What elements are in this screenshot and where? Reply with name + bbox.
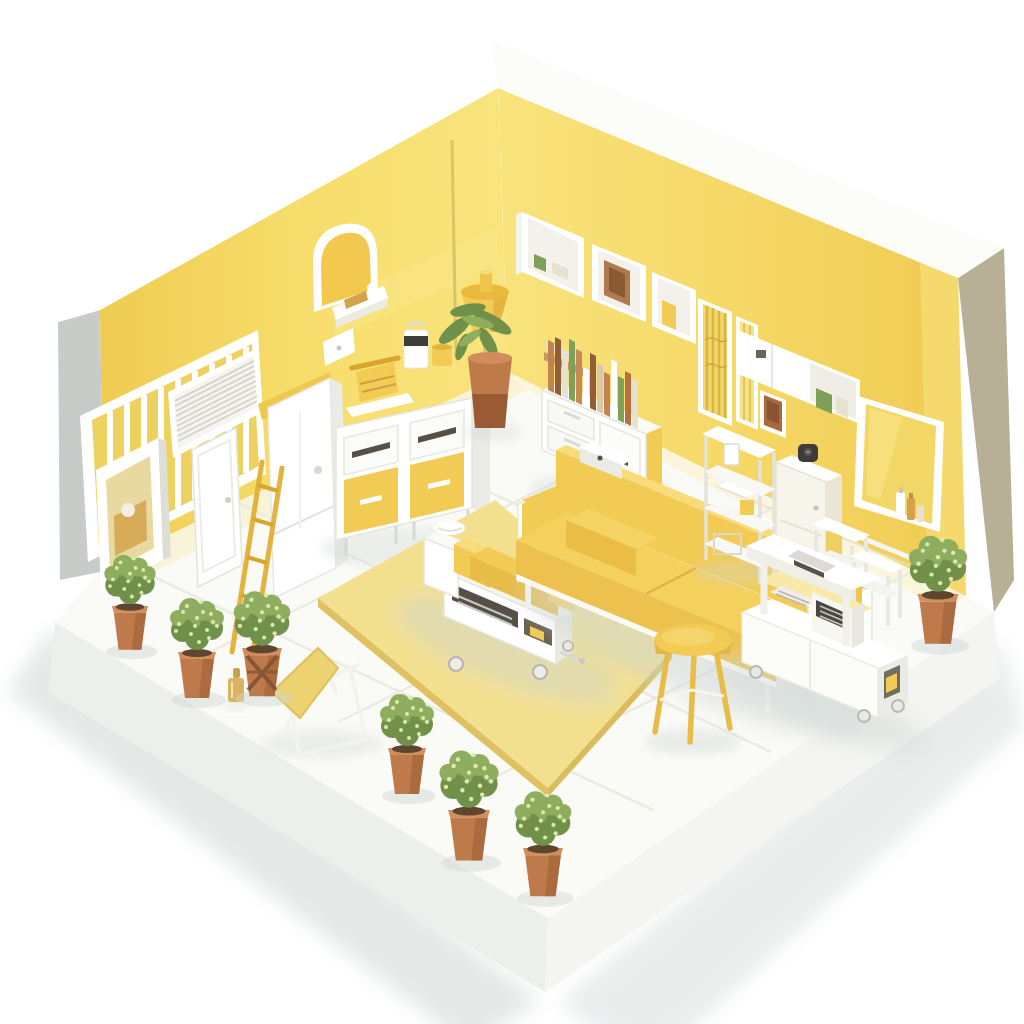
paper-roll [367, 283, 377, 293]
yellow-cup [432, 344, 452, 366]
wardrobe-handle [314, 466, 322, 474]
camera [798, 444, 818, 462]
white-door [192, 428, 242, 587]
yellow-box [740, 500, 754, 515]
isometric-room-illustration [0, 0, 1024, 1024]
cabinet-label [756, 350, 766, 358]
case-cloth [121, 503, 135, 517]
door-handle [225, 497, 231, 503]
jug [724, 444, 739, 465]
